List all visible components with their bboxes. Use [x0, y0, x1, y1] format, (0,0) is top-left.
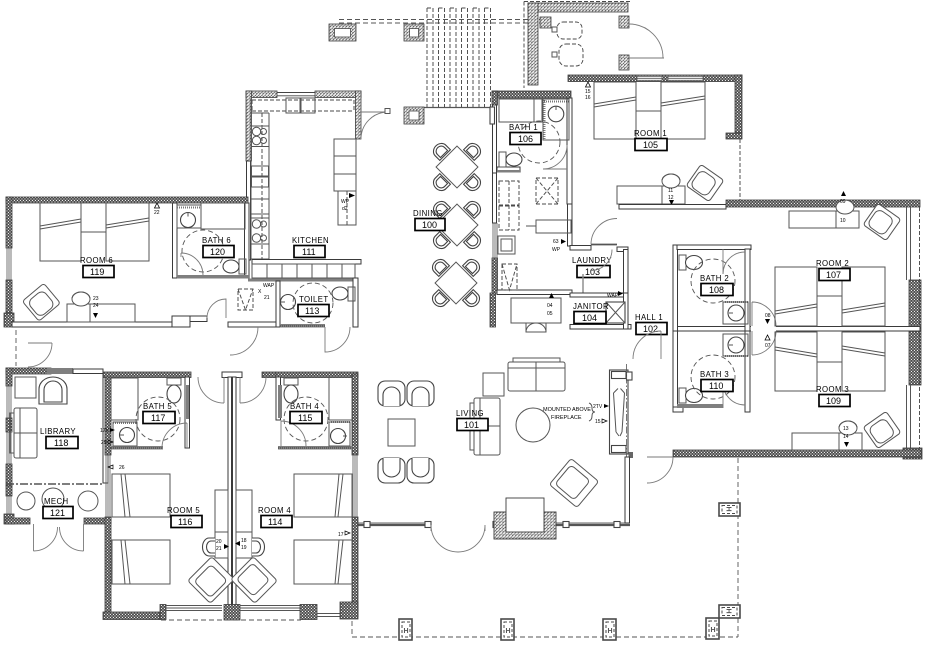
svg-text:23: 23: [93, 296, 99, 302]
svg-text:117: 117: [151, 413, 165, 423]
svg-text:101: 101: [464, 420, 479, 430]
svg-text:04: 04: [547, 303, 553, 309]
svg-text:KITCHEN: KITCHEN: [292, 236, 329, 245]
svg-text:19: 19: [241, 545, 247, 551]
svg-text:104: 104: [582, 313, 597, 323]
svg-text:118: 118: [54, 438, 68, 448]
svg-text:114: 114: [268, 517, 282, 527]
svg-text:109: 109: [826, 396, 841, 406]
svg-text:13: 13: [843, 426, 849, 432]
svg-text:FIREPLACE: FIREPLACE: [551, 415, 582, 421]
svg-text:JANITOR: JANITOR: [573, 302, 609, 311]
svg-text:11: 11: [668, 188, 673, 194]
svg-text:107: 107: [826, 270, 841, 280]
svg-text:BATH 5: BATH 5: [143, 402, 172, 411]
svg-text:WP: WP: [552, 247, 561, 253]
svg-text:BATH 6: BATH 6: [202, 236, 231, 245]
svg-text:DINING: DINING: [413, 209, 443, 218]
svg-text:BATH 2: BATH 2: [700, 274, 729, 283]
svg-text:TOILET: TOILET: [299, 295, 329, 304]
svg-text:07: 07: [765, 343, 771, 349]
svg-text:BATH 3: BATH 3: [700, 370, 729, 379]
svg-text:ROOM 2: ROOM 2: [816, 259, 849, 268]
svg-text:MECH: MECH: [44, 497, 69, 506]
svg-text:14: 14: [843, 434, 849, 440]
svg-text:100: 100: [422, 220, 437, 230]
svg-text:116: 116: [178, 517, 192, 527]
svg-text:09: 09: [840, 199, 846, 205]
svg-text:H: H: [710, 627, 715, 634]
svg-text:WAP: WAP: [263, 283, 275, 289]
svg-text:16: 16: [585, 95, 591, 101]
svg-text:H: H: [505, 628, 510, 635]
svg-text:HALL 1: HALL 1: [635, 313, 663, 322]
svg-text:121: 121: [50, 508, 65, 518]
svg-text:26: 26: [119, 465, 125, 471]
svg-text:103: 103: [585, 267, 600, 277]
svg-text:21: 21: [264, 295, 270, 301]
svg-text:ROOM 6: ROOM 6: [80, 256, 113, 265]
svg-text:WAP: WAP: [607, 293, 619, 299]
svg-text:24: 24: [93, 303, 99, 309]
svg-text:d2: d2: [342, 206, 348, 212]
svg-text:H: H: [725, 608, 732, 613]
svg-text:BATH 4: BATH 4: [290, 402, 319, 411]
svg-text:08: 08: [765, 313, 771, 319]
svg-text:115: 115: [298, 413, 312, 423]
svg-text:29: 29: [101, 440, 107, 446]
svg-text:106: 106: [518, 134, 533, 144]
svg-text:10: 10: [840, 218, 846, 224]
svg-text:17V: 17V: [100, 428, 110, 434]
svg-text:113: 113: [305, 306, 319, 316]
svg-text:ROOM 3: ROOM 3: [816, 385, 849, 394]
svg-text:H: H: [403, 628, 408, 635]
svg-text:15: 15: [595, 419, 601, 425]
svg-text:BATH 1: BATH 1: [509, 123, 538, 132]
svg-text:17: 17: [338, 532, 344, 538]
svg-text:110: 110: [709, 381, 723, 391]
svg-text:108: 108: [709, 285, 724, 295]
svg-text:120: 120: [210, 247, 225, 257]
svg-text:H: H: [607, 628, 612, 635]
svg-text:20: 20: [216, 539, 222, 545]
svg-text:LIBRARY: LIBRARY: [40, 427, 76, 436]
svg-text:X: X: [258, 289, 262, 295]
svg-text:ROOM 5: ROOM 5: [167, 506, 200, 515]
svg-text:MOUNTED ABOVE: MOUNTED ABOVE: [543, 407, 591, 413]
svg-text:05: 05: [547, 311, 553, 317]
svg-text:H: H: [725, 506, 732, 511]
svg-text:63: 63: [553, 239, 559, 245]
svg-text:ROOM 4: ROOM 4: [258, 506, 291, 515]
svg-text:18: 18: [241, 538, 247, 544]
svg-text:WP: WP: [341, 199, 350, 205]
svg-text:LIVING: LIVING: [456, 409, 484, 418]
svg-text:22: 22: [154, 210, 160, 216]
svg-text:2TV: 2TV: [593, 404, 603, 410]
svg-text:119: 119: [90, 267, 104, 277]
svg-text:21: 21: [216, 546, 222, 552]
svg-text:ROOM 1: ROOM 1: [634, 129, 667, 138]
svg-text:111: 111: [302, 247, 316, 257]
svg-text:105: 105: [643, 140, 658, 150]
